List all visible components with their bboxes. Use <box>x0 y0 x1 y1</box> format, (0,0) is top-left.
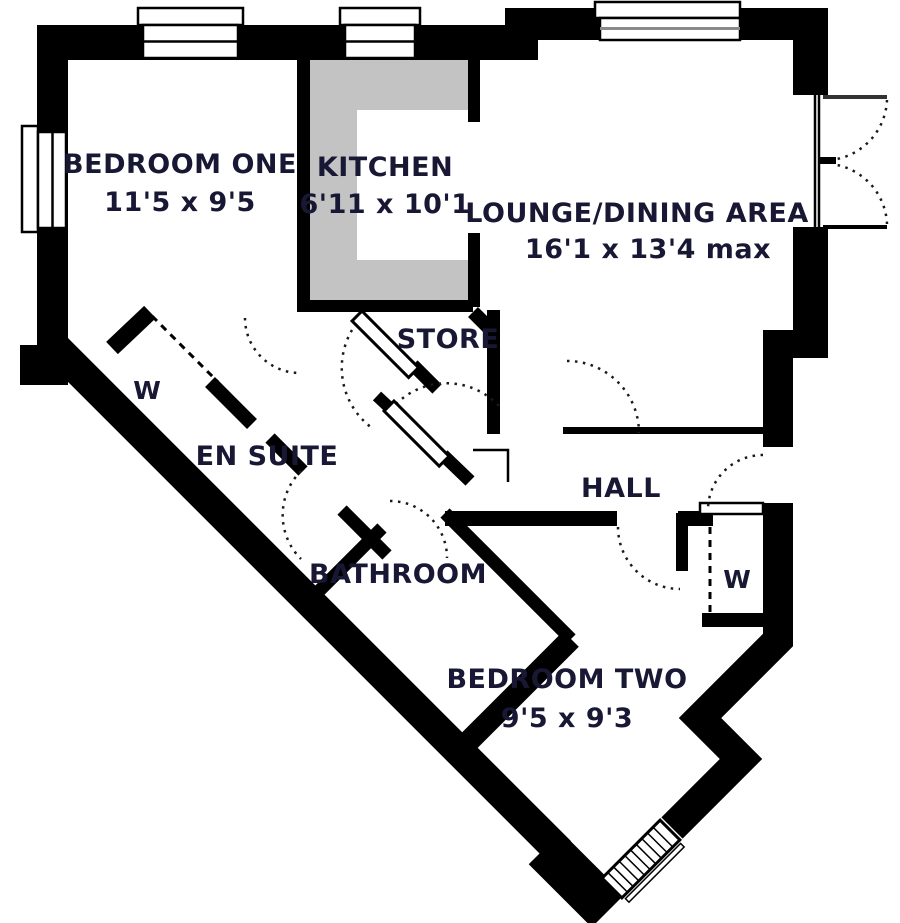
en-suite-label: EN SUITE <box>196 441 339 472</box>
store-door-arc <box>342 330 372 428</box>
bedroom-one-label: BEDROOM ONE <box>63 149 297 180</box>
bedroom-two-door-arc <box>618 527 680 589</box>
kitchen-counter <box>310 60 470 307</box>
bedroom-two-dimensions: 9'5 x 9'3 <box>501 703 633 734</box>
lounge-window <box>595 2 740 40</box>
lounge-label: LOUNGE/DINING AREA <box>465 198 808 229</box>
wardrobe-two-label: W <box>723 565 751 594</box>
floorplan-page: BEDROOM ONE 11'5 x 9'5 KITCHEN 6'11 x 10… <box>0 0 900 923</box>
lounge-dimensions: 16'1 x 13'4 max <box>525 234 771 265</box>
wardrobe-one-label: W <box>133 376 161 405</box>
outer-walls <box>20 8 828 911</box>
kitchen-window <box>340 8 420 58</box>
hall-label: HALL <box>581 473 661 504</box>
bedroom-two-door-leaf <box>676 513 688 571</box>
en-suite-door-arc <box>283 471 301 559</box>
inner-hall-door-leaf <box>384 401 449 466</box>
bedroom-two-window <box>602 820 685 903</box>
inner-hall-door-arc <box>396 383 500 407</box>
bedroom-one-dimensions: 11'5 x 9'5 <box>104 187 256 218</box>
store-label: STORE <box>397 324 500 355</box>
bathroom-door-arc <box>390 501 447 558</box>
kitchen-dimensions: 6'11 x 10'1 <box>300 189 471 220</box>
kitchen-label: KITCHEN <box>317 152 453 183</box>
bathroom-label: BATHROOM <box>309 559 487 590</box>
floorplan-drawing: BEDROOM ONE 11'5 x 9'5 KITCHEN 6'11 x 10… <box>0 0 900 923</box>
bedroom-one-left-window <box>22 126 66 232</box>
bedroom-one-door-arc <box>245 318 300 373</box>
lounge-door-arc <box>567 361 639 433</box>
bedroom-two-label: BEDROOM TWO <box>446 664 687 695</box>
bedroom-one-top-window <box>138 8 243 58</box>
